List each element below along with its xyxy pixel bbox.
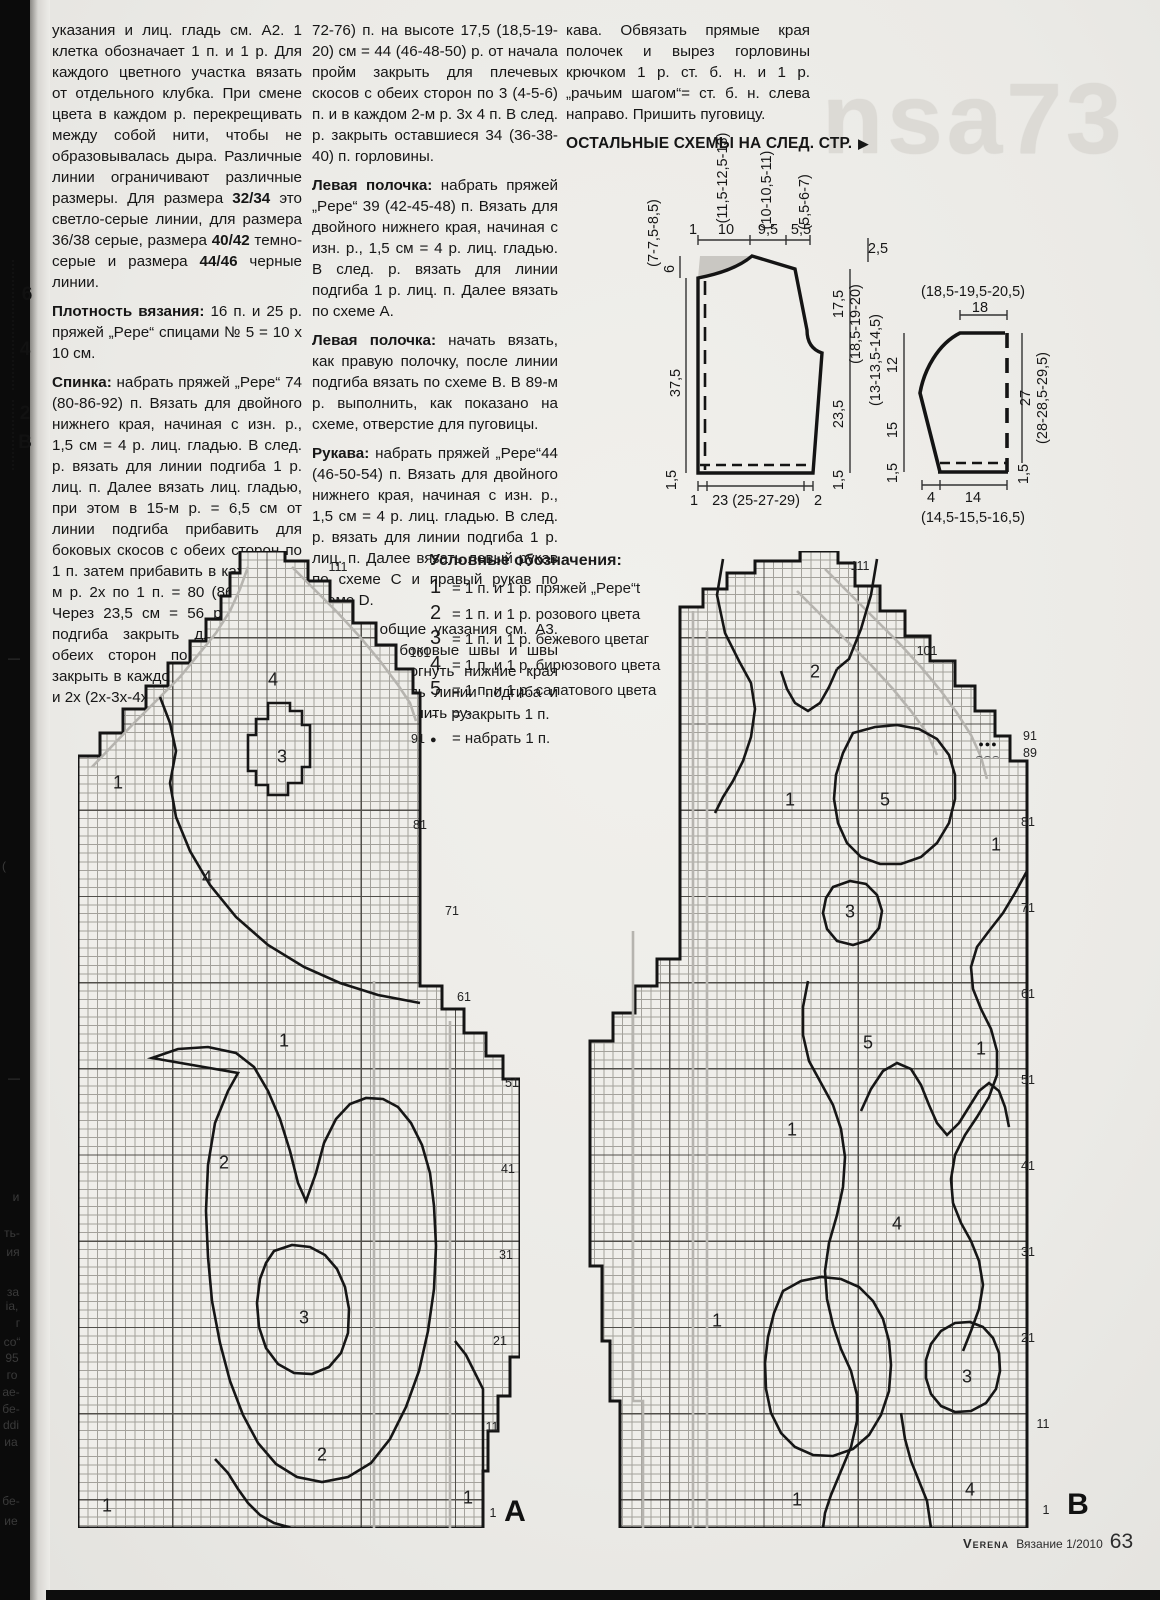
legend-text: = 1 п. и 1 р. бежевого цветаг xyxy=(452,631,649,648)
page-spine xyxy=(0,0,30,1600)
measure-label: 37,5 xyxy=(668,369,684,397)
legend-item: 3= 1 п. и 1 р. бежевого цветаг xyxy=(430,629,680,648)
chart-a-row-number: 61 xyxy=(457,990,471,1004)
legend-symbol: 2 xyxy=(430,604,452,622)
legend-title: Условные обозначения: xyxy=(430,552,680,570)
measure-label: (11,5-12,5-13) xyxy=(715,133,731,224)
measure-label: 1,5 xyxy=(664,470,680,490)
legend-item: 2= 1 п. и 1 р. розового цвета xyxy=(430,604,680,623)
measure-label: 23 (25-27-29) xyxy=(712,493,800,509)
chart-a-row-number: 1 xyxy=(490,1506,497,1520)
legend-item: ⌢= закрыть 1 п. xyxy=(430,706,680,724)
measure-label: (7-7,5-8,5) xyxy=(646,199,662,267)
measure-label: (13-13,5-14,5) xyxy=(868,314,884,406)
magazine-page: nsa73 указания и лиц. гладь см. А2. 1 кл… xyxy=(0,0,1160,1600)
measure-label: 1,5 xyxy=(885,463,901,483)
measure-label: 27 xyxy=(1018,390,1034,406)
measure-label: (18,5-19,5-20,5) xyxy=(921,284,1025,300)
sleeve-schematic: (18,5-19,5-20,5) 18 (13-13,5-14,5) 12 15… xyxy=(860,270,1145,530)
cast-on-stitches-icon: ●●● xyxy=(978,739,997,749)
bottom-black-bar xyxy=(46,1590,1160,1600)
magazine-brand: Verena xyxy=(963,1536,1009,1551)
legend-item: 4= 1 п. и 1 р. бирюзового цвета xyxy=(430,655,680,674)
measure-label: 17,5 xyxy=(831,290,847,318)
right-front-paragraph: Левая полочка: начать вязать, как правую… xyxy=(312,330,558,435)
chart-a-row-number: 71 xyxy=(445,904,459,918)
measure-label: 18 xyxy=(972,300,988,316)
legend-text: = 1 п. и 1 р. розового цвета xyxy=(452,606,640,623)
chart-a-letter: A xyxy=(504,1495,526,1529)
measure-label: 6 xyxy=(662,265,678,273)
legend-symbol: 1 xyxy=(430,578,452,596)
body-piece-outline xyxy=(698,256,822,473)
legend-text: = 1 п. и 1 р. пряжей „Pepe“t xyxy=(452,580,640,597)
chart-b-row-number: 91 xyxy=(1023,729,1037,743)
measure-label: 9,5 xyxy=(758,222,778,238)
measure-label: 2,5 xyxy=(868,241,888,257)
page-footer: Verena Вязание 1/2010 63 xyxy=(963,1530,1133,1554)
shoulder-paragraph: 72-76) п. на высоте 17,5 (18,5-19-20) см… xyxy=(312,20,558,167)
legend-text: = закрыть 1 п. xyxy=(452,706,550,723)
issue-label: Вязание 1/2010 xyxy=(1016,1537,1103,1551)
measure-label: 10 xyxy=(718,222,734,238)
legend-item: ●= набрать 1 п. xyxy=(430,730,680,749)
body-piece-schematic: (11,5-12,5-13) (10-10,5-11) (5,5-6-7) 1 … xyxy=(600,128,900,520)
legend-text: = 1 п. и 1 р. салатового цвета xyxy=(452,682,656,699)
chart-b-letter: B xyxy=(1067,1488,1089,1522)
measure-label: 15 xyxy=(885,422,901,438)
measure-label: 1,5 xyxy=(1016,464,1032,484)
chart-b-row-number: 11 xyxy=(1037,1417,1050,1431)
gauge-paragraph: Плотность вязания: 16 п. и 25 р. пряжей … xyxy=(52,301,302,364)
measure-label: 4 xyxy=(927,490,935,506)
legend-symbol: 3 xyxy=(430,629,452,647)
bind-off-icon: ⌢ xyxy=(430,706,452,724)
legend-item: 5= 1 п. и 1 р. салатового цвета xyxy=(430,680,680,699)
legend-symbol: 5 xyxy=(430,680,452,698)
page-fold-edge xyxy=(30,0,50,1600)
chart-legend: Условные обозначения: 1= 1 п. и 1 р. пря… xyxy=(430,552,680,756)
chart-b-row-number: 1 xyxy=(1043,1503,1050,1517)
legend-text: = 1 п. и 1 р. бирюзового цвета xyxy=(452,657,660,674)
legend-symbol: 4 xyxy=(430,655,452,673)
measure-label: 14 xyxy=(965,490,981,506)
measure-label: 2 xyxy=(814,493,822,509)
spine-dotted-line xyxy=(12,400,14,470)
measure-label: (10-10,5-11) xyxy=(759,151,775,230)
measure-label: 1,5 xyxy=(831,470,847,490)
measure-label: 12 xyxy=(885,357,901,373)
cast-on-icon: ● xyxy=(430,731,452,749)
left-front-paragraph: Левая полочка: набрать пряжей „Pepe“ 39 … xyxy=(312,175,558,322)
legend-text: = набрать 1 п. xyxy=(452,730,550,747)
legend-item: 1= 1 п. и 1 р. пряжей „Pepe“t xyxy=(430,578,680,597)
measure-label: 5,5 xyxy=(791,222,811,238)
chart-b-row-number: 89 xyxy=(1023,746,1037,760)
spine-dotted-line xyxy=(12,260,14,390)
measure-label: (14,5-15,5-16,5) xyxy=(921,510,1025,526)
measure-label: 1 xyxy=(689,222,697,238)
measure-label: 23,5 xyxy=(831,400,847,428)
measure-label: 1 xyxy=(690,493,698,509)
finishing-paragraph: кава. Обвязать прямые края полочек и выр… xyxy=(566,20,810,125)
bind-off-stitches-icon: ⌢⌢⌢ xyxy=(976,751,1001,764)
sleeve-outline xyxy=(920,333,1005,472)
instructions-paragraph: указания и лиц. гладь см. А2. 1 клетка о… xyxy=(52,20,302,293)
measure-label: (28-28,5-29,5) xyxy=(1035,352,1051,444)
page-number: 63 xyxy=(1110,1530,1133,1554)
